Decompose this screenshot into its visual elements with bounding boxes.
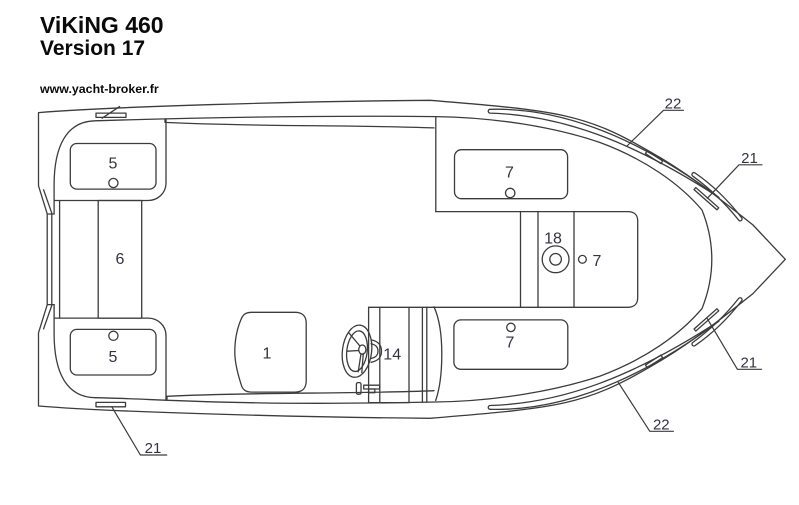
svg-text:21: 21 [741,150,758,167]
svg-text:1: 1 [263,346,272,363]
svg-text:5: 5 [109,349,118,366]
svg-text:7: 7 [505,165,514,182]
svg-text:14: 14 [383,346,401,363]
svg-text:22: 22 [653,417,670,434]
svg-text:21: 21 [740,354,757,371]
svg-text:6: 6 [116,251,125,268]
svg-text:18: 18 [544,231,562,248]
svg-text:5: 5 [109,156,118,173]
svg-text:7: 7 [506,335,515,352]
svg-text:7: 7 [593,253,602,270]
svg-text:22: 22 [665,95,682,112]
svg-text:21: 21 [145,440,162,457]
